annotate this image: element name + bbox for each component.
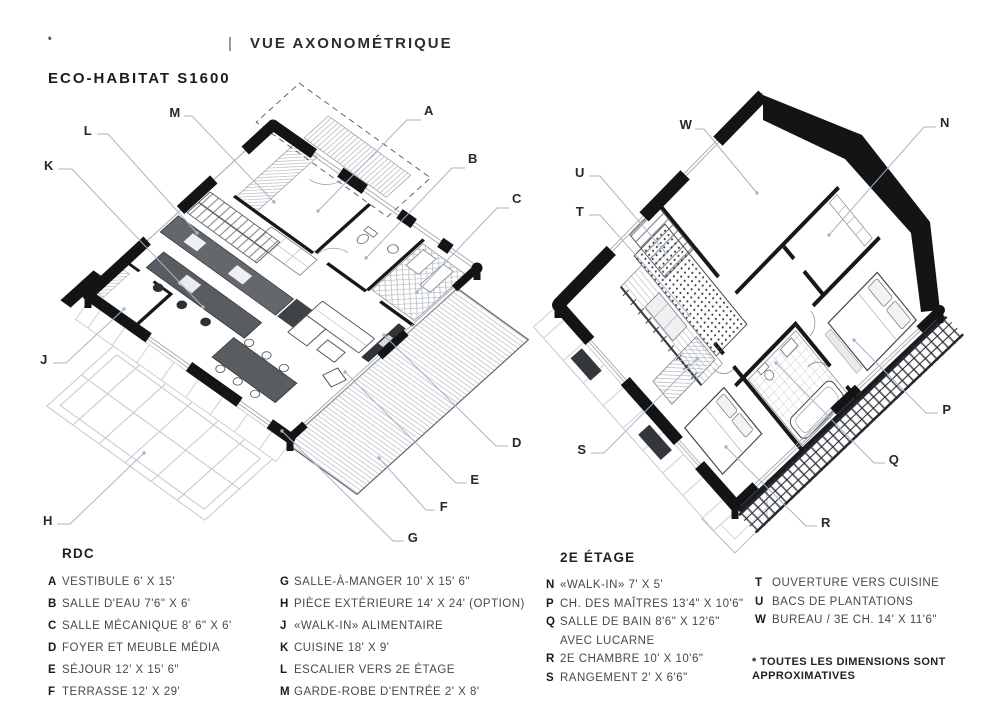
legend-text: BACS DE PLANTATIONS — [772, 596, 913, 608]
caption-2e-etage: 2E ÉTAGE — [560, 550, 635, 565]
leader-dot-N — [827, 233, 830, 236]
caption-rdc: RDC — [62, 546, 95, 561]
legend-letter: K — [280, 642, 294, 654]
legend-letter: J — [280, 620, 294, 632]
legend-letter: B — [48, 598, 62, 610]
room-label-T: T — [576, 204, 584, 219]
legend-letter: A — [48, 576, 62, 588]
room-label-C: C — [512, 191, 522, 206]
room-label-J: J — [40, 352, 48, 367]
leader-dot-U — [664, 251, 667, 254]
leader-dot-Q — [774, 361, 777, 364]
legend-item: DFOYER ET MEUBLE MÉDIA — [48, 642, 232, 654]
legend-item: WBUREAU / 3E CH. 14' X 11'6" — [755, 614, 939, 626]
leader-dot-L — [195, 231, 198, 234]
room-label-D: D — [512, 435, 522, 450]
floor-plan-rdc — [25, 83, 578, 570]
legend-letter: D — [48, 642, 62, 654]
leader-dot-J — [122, 307, 125, 310]
room-label-E: E — [470, 472, 479, 487]
room-label-A: A — [424, 103, 434, 118]
legend-item: PCH. DES MAÎTRES 13'4" X 10'6" — [546, 598, 744, 610]
room-label-Q: Q — [889, 452, 900, 467]
floor-plan-2e — [534, 93, 965, 553]
leader-dot-H — [142, 451, 145, 454]
legend-item: QSALLE DE BAIN 8'6" X 12'6" — [546, 616, 744, 628]
legend-text: GARDE-ROBE D'ENTRÉE 2' X 8' — [294, 686, 480, 698]
legend-item: TOUVERTURE VERS CUISINE — [755, 577, 939, 589]
legend-letter: G — [280, 576, 294, 588]
legend-text: SALLE D'EAU 7'6" X 6' — [62, 598, 191, 610]
leader-dot-M — [272, 200, 275, 203]
legend-text: CUISINE 18' X 9' — [294, 642, 389, 654]
legend-item: GSALLE-À-MANGER 10' X 15' 6" — [280, 576, 525, 588]
legend-text: AVEC LUCARNE — [560, 635, 655, 647]
legend-text: CH. DES MAÎTRES 13'4" X 10'6" — [560, 598, 744, 610]
legend-letter: E — [48, 664, 62, 676]
legend-item: BSALLE D'EAU 7'6" X 6' — [48, 598, 232, 610]
legend-letter: T — [755, 577, 772, 589]
legend-letter: M — [280, 686, 294, 698]
leader-dot-E — [343, 370, 346, 373]
legend-item: ESÉJOUR 12' X 15' 6" — [48, 664, 232, 676]
legend-text: SALLE DE BAIN 8'6" X 12'6" — [560, 616, 720, 628]
legend-text: SALLE-À-MANGER 10' X 15' 6" — [294, 576, 470, 588]
legend-letter: L — [280, 664, 294, 676]
leader-line-H — [57, 453, 144, 524]
legend-item: CSALLE MÉCANIQUE 8' 6" X 6' — [48, 620, 232, 632]
legend-item: LESCALIER VERS 2E ÉTAGE — [280, 664, 525, 676]
room-label-L: L — [84, 123, 92, 138]
legend-text: PIÈCE EXTÉRIEURE 14' X 24' (OPTION) — [294, 598, 525, 610]
legend-item: HPIÈCE EXTÉRIEURE 14' X 24' (OPTION) — [280, 598, 525, 610]
legend-text: RANGEMENT 2' X 6'6" — [560, 672, 688, 684]
leader-dot-B — [364, 256, 367, 259]
legend-letter: S — [546, 672, 560, 684]
leader-dot-C — [415, 290, 418, 293]
legend-letter: W — [755, 614, 772, 626]
page: ECO-HABITAT S1600* | VUE AXONOMÉTRIQUE — [0, 0, 1000, 715]
leader-dot-R — [724, 445, 727, 448]
legend-item: N«WALK-IN» 7' X 5' — [546, 579, 744, 591]
legend-text: «WALK-IN» ALIMENTAIRE — [294, 620, 443, 632]
room-label-U: U — [575, 165, 585, 180]
legend-text: TERRASSE 12' X 29' — [62, 686, 180, 698]
legend-text: ESCALIER VERS 2E ÉTAGE — [294, 664, 455, 676]
leader-dot-F — [377, 456, 380, 459]
footnote-line2: APPROXIMATIVES — [752, 670, 946, 684]
leader-dot-D — [382, 333, 385, 336]
room-label-H: H — [43, 513, 53, 528]
legend-letter: Q — [546, 616, 560, 628]
room-label-B: B — [468, 151, 478, 166]
room-label-S: S — [577, 442, 586, 457]
room-label-K: K — [44, 158, 54, 173]
legend-letter: P — [546, 598, 560, 610]
room-label-N: N — [940, 115, 950, 130]
legend-text: FOYER ET MEUBLE MÉDIA — [62, 642, 220, 654]
legend-column-2e-2: TOUVERTURE VERS CUISINEUBACS DE PLANTATI… — [755, 577, 939, 633]
legend-text: OUVERTURE VERS CUISINE — [772, 577, 939, 589]
dimensions-footnote: * TOUTES LES DIMENSIONS SONT APPROXIMATI… — [752, 656, 946, 683]
legend-column-rdc-1: AVESTIBULE 6' X 15'BSALLE D'EAU 7'6" X 6… — [48, 576, 232, 708]
legend-column-rdc-2: GSALLE-À-MANGER 10' X 15' 6"HPIÈCE EXTÉR… — [280, 576, 525, 708]
leader-dot-G — [280, 429, 283, 432]
room-label-M: M — [169, 105, 180, 120]
leader-dot-A — [316, 209, 319, 212]
footnote-line1: * TOUTES LES DIMENSIONS SONT — [752, 656, 946, 670]
room-label-R: R — [821, 515, 831, 530]
leader-dot-T — [687, 313, 690, 316]
legend-item: KCUISINE 18' X 9' — [280, 642, 525, 654]
legend-item: MGARDE-ROBE D'ENTRÉE 2' X 8' — [280, 686, 525, 698]
legend-item: AVESTIBULE 6' X 15' — [48, 576, 232, 588]
legend-letter: C — [48, 620, 62, 632]
legend-letter: U — [755, 596, 772, 608]
leader-dot-S — [695, 357, 698, 360]
legend-text: 2E CHAMBRE 10' X 10'6" — [560, 653, 703, 665]
legend-text: VESTIBULE 6' X 15' — [62, 576, 175, 588]
leader-dot-P — [852, 338, 855, 341]
room-label-P: P — [942, 402, 951, 417]
legend-text: BUREAU / 3E CH. 14' X 11'6" — [772, 614, 937, 626]
room-label-F: F — [440, 499, 448, 514]
legend-letter: R — [546, 653, 560, 665]
legend-text: SÉJOUR 12' X 15' 6" — [62, 664, 179, 676]
legend-column-2e-1: N«WALK-IN» 7' X 5'PCH. DES MAÎTRES 13'4"… — [546, 579, 744, 690]
legend-letter: H — [280, 598, 294, 610]
room-label-W: W — [680, 117, 693, 132]
room-label-G: G — [408, 530, 419, 545]
legend-text: SALLE MÉCANIQUE 8' 6" X 6' — [62, 620, 232, 632]
legend-letter: F — [48, 686, 62, 698]
leader-dot-W — [755, 191, 758, 194]
legend-letter: N — [546, 579, 560, 591]
legend-item: SRANGEMENT 2' X 6'6" — [546, 672, 744, 684]
legend-item: R2E CHAMBRE 10' X 10'6" — [546, 653, 744, 665]
legend-item: FTERRASSE 12' X 29' — [48, 686, 232, 698]
leader-dot-K — [201, 305, 204, 308]
legend-item: J«WALK-IN» ALIMENTAIRE — [280, 620, 525, 632]
legend-text: «WALK-IN» 7' X 5' — [560, 579, 663, 591]
legend-item: AVEC LUCARNE — [546, 635, 744, 647]
legend-item: UBACS DE PLANTATIONS — [755, 596, 939, 608]
